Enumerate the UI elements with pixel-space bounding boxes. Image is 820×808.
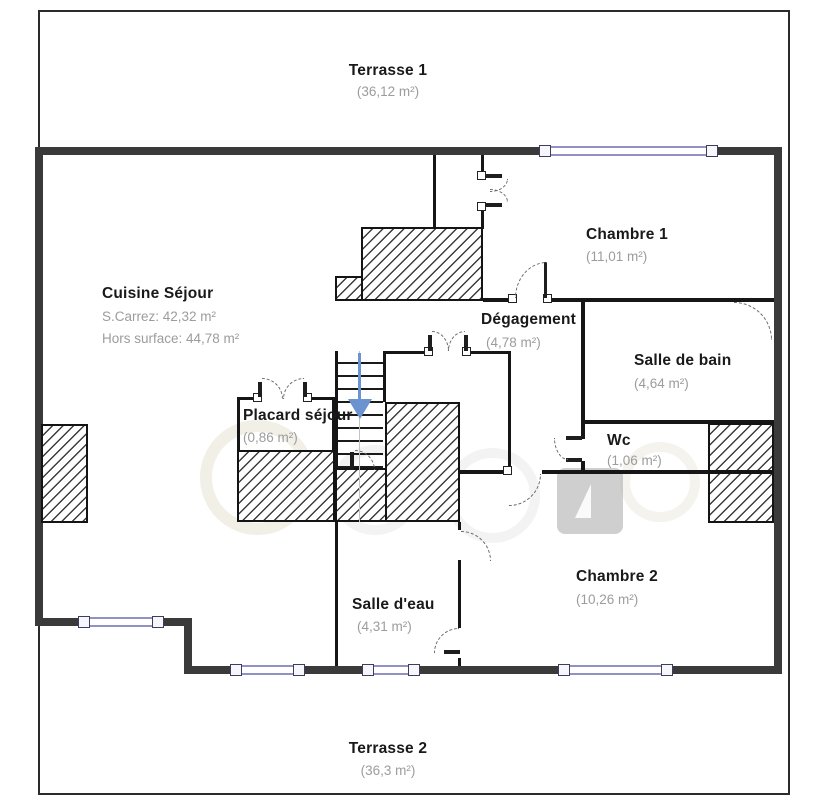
room-area-placard-sejour: (0,86 m²) (243, 430, 298, 445)
interior-wall (542, 470, 710, 474)
room-label-chambre2: Chambre 2 (576, 568, 658, 586)
hatched-zone (335, 276, 363, 301)
room-label-cuisine-sejour: Cuisine Séjour (102, 285, 213, 303)
room-label-wc: Wc (607, 432, 631, 450)
room-area-cuisine-hors-surface: Hors surface: 44,78 m² (102, 331, 239, 346)
room-label-salle-deau: Salle d'eau (352, 596, 435, 614)
room-label-terrasse1: Terrasse 1 (349, 62, 427, 80)
exterior-wall-right (774, 147, 782, 674)
room-area-chambre1: (11,01 m²) (586, 249, 647, 264)
interior-wall (460, 470, 508, 474)
door-leaf (486, 203, 502, 207)
stairs-direction-arrow (358, 353, 361, 401)
door-leaf (566, 436, 582, 440)
window-jamb (78, 616, 90, 628)
window-jamb (152, 616, 164, 628)
interior-wall (508, 351, 511, 472)
room-area-degagement: (4,78 m²) (486, 335, 541, 350)
room-area-wc: (1,06 m²) (607, 453, 662, 468)
interior-wall (433, 155, 436, 229)
interior-wall (468, 351, 510, 354)
floor-plan: Terrasse 1 (36,12 m²) Cuisine Séjour S.C… (0, 0, 820, 808)
window-jamb (230, 664, 242, 676)
room-label-placard-sejour: Placard séjour (243, 407, 353, 425)
room-area-salle-de-bain: (4,64 m²) (634, 376, 689, 391)
watermark-logo (557, 468, 623, 534)
room-label-terrasse2: Terrasse 2 (349, 740, 427, 758)
window-jamb (661, 664, 673, 676)
window-jamb (293, 664, 305, 676)
door-jamb (477, 202, 486, 211)
window-jamb (362, 664, 374, 676)
door-leaf (350, 452, 354, 470)
window-jamb (558, 664, 570, 676)
hatched-zone (708, 472, 774, 523)
hatched-zone (361, 227, 483, 301)
door-leaf (566, 458, 582, 462)
room-area-cuisine-carrez: S.Carrez: 42,32 m² (102, 309, 216, 324)
exterior-wall-left (35, 147, 43, 626)
window-jamb (408, 664, 420, 676)
hatched-zone (41, 424, 88, 523)
hatched-zone (237, 450, 335, 522)
window-jamb (539, 145, 551, 157)
interior-wall (383, 351, 386, 402)
interior-wall (335, 522, 338, 666)
room-label-degagement: Dégagement (481, 311, 576, 329)
door-leaf (486, 174, 502, 178)
interior-wall (458, 522, 461, 530)
door-jamb (477, 171, 486, 180)
room-area-salle-deau: (4,31 m²) (357, 619, 412, 634)
room-area-chambre2: (10,26 m²) (576, 592, 638, 607)
hatched-zone (385, 402, 460, 522)
room-area-terrasse2: (36,3 m²) (361, 763, 416, 778)
interior-wall (458, 658, 461, 666)
interior-wall (458, 560, 461, 628)
window-jamb (706, 145, 718, 157)
room-label-chambre1: Chambre 1 (586, 226, 668, 244)
interior-wall (237, 397, 240, 450)
watermark-logo-glyph (575, 484, 591, 518)
window (565, 665, 667, 675)
window (84, 617, 158, 627)
interior-wall (308, 397, 335, 400)
window (237, 665, 299, 675)
room-area-terrasse1: (36,12 m²) (357, 84, 419, 99)
window (546, 146, 712, 156)
interior-wall (581, 298, 585, 439)
room-label-salle-de-bain: Salle de bain (634, 352, 731, 370)
hatched-zone (335, 468, 387, 522)
hatched-zone (708, 423, 774, 472)
interior-wall (385, 351, 428, 354)
